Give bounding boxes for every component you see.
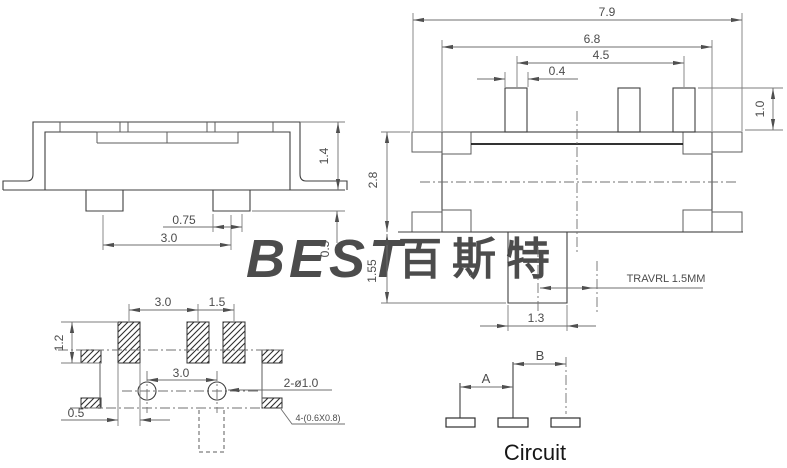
callout-holes-label: 2-ø1.0 [284, 376, 319, 390]
circuit-terminal-2 [498, 418, 528, 427]
top-tab-right-lower [712, 212, 742, 232]
side-pin-ticks [60, 122, 273, 132]
top-tab-left-upper [412, 132, 442, 152]
footprint-view: 3.0 1.5 1.2 3.0 0.5 2-ø1.0 4-(0.6X0.8) [52, 295, 345, 452]
dim-label-pad-pitch-a: 3.0 [155, 295, 172, 309]
dim-label-body-depth: 2.8 [366, 171, 380, 188]
footprint-actuator-hidden [199, 410, 224, 452]
top-notch-right-upper [683, 132, 712, 154]
footprint-side-pad-top-right [262, 350, 282, 363]
top-pin-3 [673, 88, 695, 132]
drawing-svg: BEST 百斯特 3.0 0.75 1.4 0.5 [0, 0, 787, 468]
callout-side-pads-label: 4-(0.6X0.8) [295, 413, 340, 423]
watermark-cjk-text: 百斯特 [398, 235, 560, 284]
top-tab-right-upper [712, 132, 742, 152]
dim-label-knob-depth: 1.55 [365, 259, 379, 283]
dim-label-pin-span: 4.5 [593, 48, 610, 62]
top-pin-1 [505, 88, 527, 132]
top-pin-2 [618, 88, 640, 132]
dim-label-peg-width: 0.75 [172, 213, 196, 227]
dim-label-a: A [482, 371, 491, 386]
circuit-terminal-3 [551, 418, 580, 427]
dim-label-body-width: 6.8 [584, 32, 601, 46]
side-slider-knob [97, 132, 238, 143]
top-notch-right-lower [683, 210, 712, 232]
footprint-pad-3 [223, 322, 245, 363]
dim-label-b: B [536, 348, 545, 363]
footprint-side-pad-top-left [81, 350, 101, 363]
dim-label-pad-pitch-b: 1.5 [209, 295, 226, 309]
engineering-drawing-canvas: BEST 百斯特 3.0 0.75 1.4 0.5 [0, 0, 787, 468]
circuit-title: Circuit [504, 440, 566, 465]
dim-label-overall-width: 7.9 [599, 5, 616, 19]
dim-label-pin-width: 0.4 [549, 64, 566, 78]
circuit-terminal-1 [446, 418, 475, 427]
dim-label-peg-pitch: 3.0 [161, 231, 178, 245]
dim-label-knob-width: 1.3 [528, 311, 545, 325]
dim-label-hole-pitch: 3.0 [173, 366, 190, 380]
side-pegs [86, 190, 250, 211]
dim-label-pad-width: 0.5 [68, 406, 85, 420]
footprint-pad-1 [118, 322, 140, 363]
watermark-latin-text: BEST [246, 229, 406, 289]
dim-label-pad-height: 1.2 [52, 334, 66, 351]
footprint-pad-2 [187, 322, 209, 363]
footprint-side-pad-bottom-right [262, 398, 282, 408]
circuit-view: A B Circuit [446, 348, 580, 465]
top-notch-left-upper [442, 132, 471, 154]
watermark: BEST 百斯特 [246, 229, 560, 289]
dim-label-pin-height: 1.0 [753, 100, 767, 117]
travel-note-label: TRAVRL 1.5MM [627, 273, 706, 285]
top-notch-left-lower [442, 210, 471, 232]
dim-label-peg-height: 0.5 [318, 240, 332, 257]
dim-label-body-height: 1.4 [317, 147, 331, 164]
top-tab-left-lower [412, 212, 442, 232]
